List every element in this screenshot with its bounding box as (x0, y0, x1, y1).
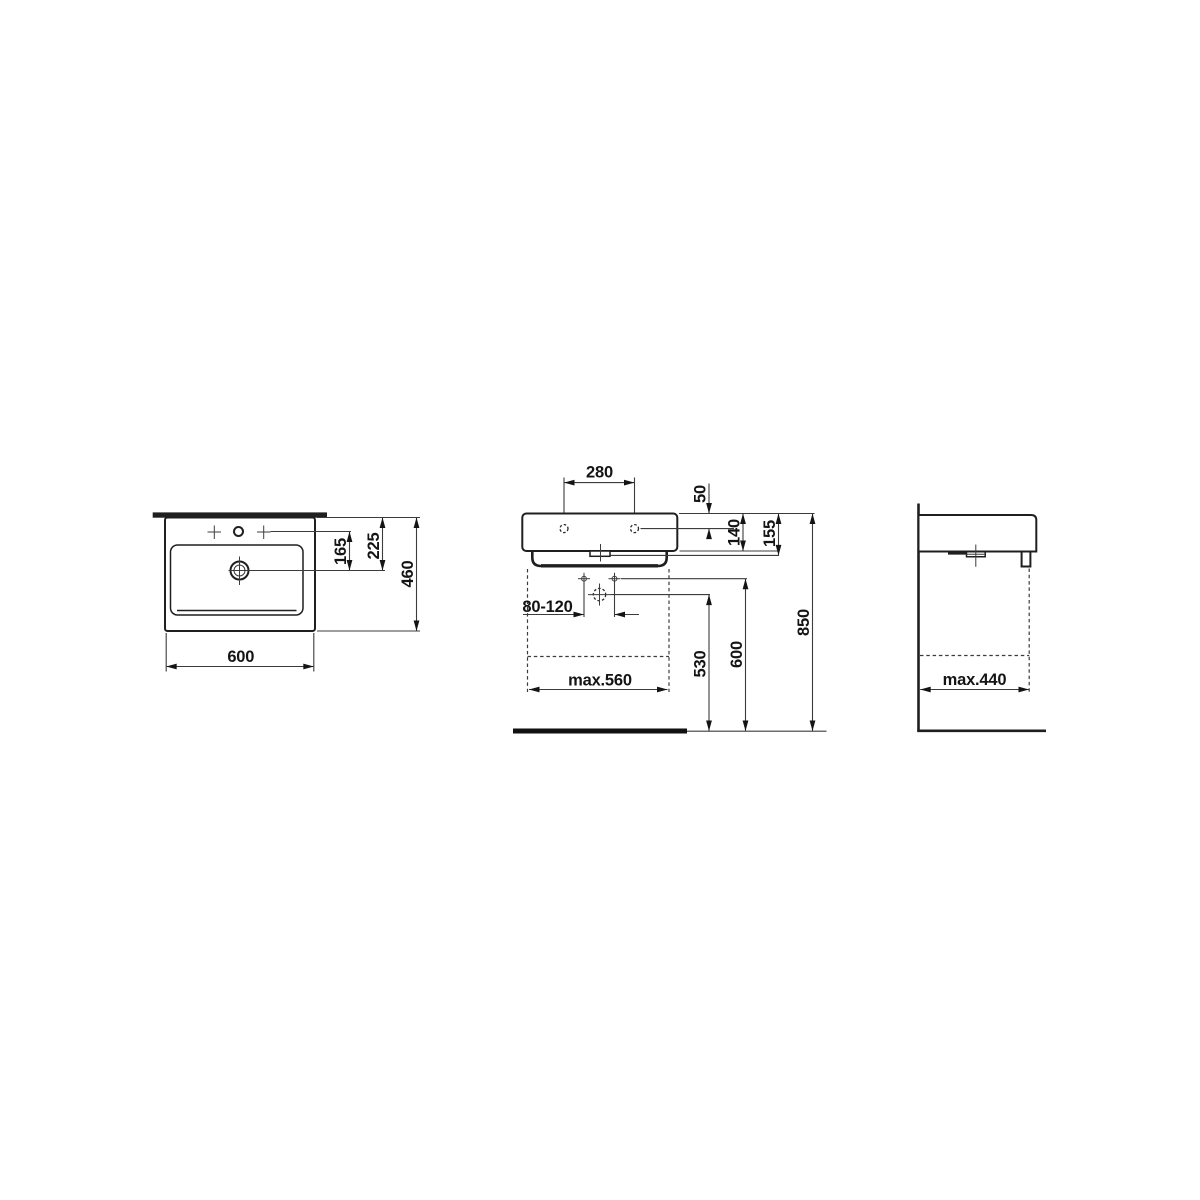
plan-outline (153, 512, 327, 631)
dim-label-50: 50 (692, 485, 710, 503)
plan-tap-hole (234, 527, 243, 536)
side-basin-body (920, 515, 1037, 552)
side-view: max.440 (917, 504, 1046, 731)
plan-view: 165 225 460 600 (153, 512, 420, 671)
dim-label-530: 530 (692, 651, 710, 678)
side-front-outlet (1022, 552, 1031, 567)
front-drain-symbol (588, 584, 611, 606)
front-view: 280 50 140 155 850 600 530 (513, 464, 827, 732)
dim-label-280: 280 (586, 464, 613, 482)
side-dimensions: max.440 (920, 671, 1029, 690)
dim-label-max440: max.440 (943, 671, 1007, 689)
dim-label-80-120: 80-120 (522, 598, 572, 616)
front-outline (513, 514, 827, 732)
dim-label-850: 850 (795, 609, 813, 636)
front-dimensions: 280 50 140 155 850 600 530 (522, 464, 813, 732)
dim-label-max560: max.560 (568, 672, 632, 690)
dim-label-140: 140 (726, 519, 744, 546)
side-outline (917, 504, 1046, 731)
front-basin-body (522, 514, 677, 552)
washbasin-dimension-drawing: 165 225 460 600 (0, 0, 1200, 1200)
dim-label-460: 460 (399, 561, 417, 588)
drawing-page: 165 225 460 600 (0, 0, 1200, 1200)
dim-label-600-width: 600 (227, 648, 254, 666)
dim-label-155: 155 (761, 520, 779, 547)
dim-label-225: 225 (365, 533, 383, 560)
dim-label-165: 165 (332, 538, 350, 565)
dim-label-600-height: 600 (728, 641, 746, 668)
